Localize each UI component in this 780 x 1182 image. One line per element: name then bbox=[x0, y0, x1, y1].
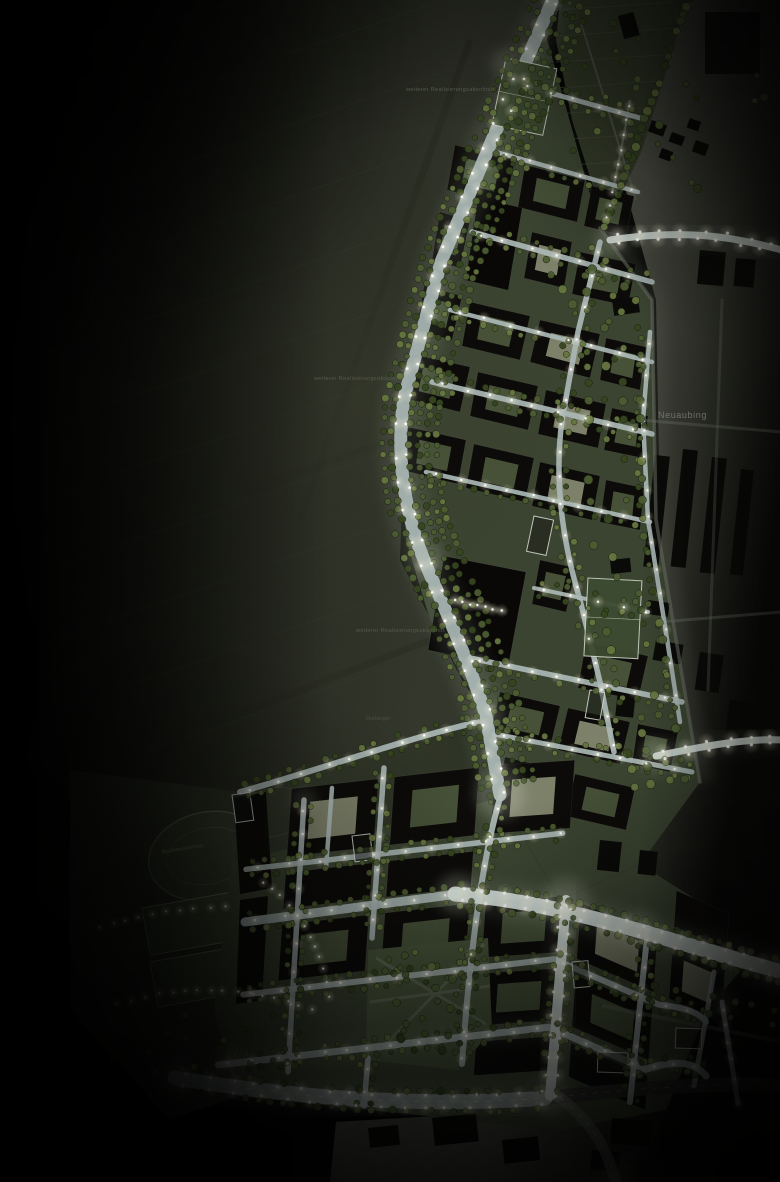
masterplan-canvas bbox=[0, 0, 780, 1182]
masterplan-map: Neuaubing weiterer Realisierungsabschnit… bbox=[0, 0, 780, 1182]
